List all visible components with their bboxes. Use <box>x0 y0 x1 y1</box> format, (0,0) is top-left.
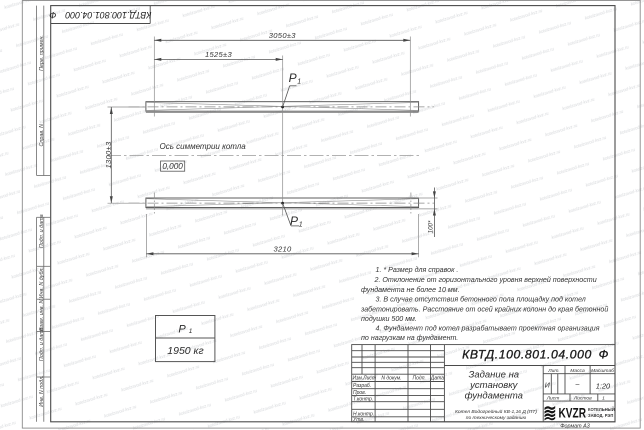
svg-text:ЗАВОД. РЭП: ЗАВОД. РЭП <box>588 413 613 418</box>
svg-text:Взам. инв. N: Взам. инв. N <box>39 299 45 331</box>
svg-text:Подп. и дата: Подп. и дата <box>39 327 45 361</box>
svg-text:Утв.: Утв. <box>353 417 364 423</box>
svg-text:N докум.: N докум. <box>381 376 401 382</box>
svg-text:1:20: 1:20 <box>596 382 611 391</box>
svg-text:по нагрузкам на фундамент.: по нагрузкам на фундамент. <box>361 334 458 342</box>
svg-text:Масса: Масса <box>570 368 585 374</box>
svg-text:1300±3: 1300±3 <box>104 141 113 169</box>
svg-text:2. Отклонение от горизонтально: 2. Отклонение от горизонтального уровня … <box>374 276 597 284</box>
svg-text:3. В случае отсутствия бетонно: 3. В случае отсутствия бетонного пола пл… <box>376 296 586 304</box>
svg-text:Справ. N: Справ. N <box>39 124 45 147</box>
svg-text:Т.контр.: Т.контр. <box>353 396 373 402</box>
svg-text:Инв. N подл.: Инв. N подл. <box>39 375 45 407</box>
svg-text:0,000: 0,000 <box>162 162 183 171</box>
svg-text:Листов: Листов <box>573 395 592 401</box>
svg-text:подушки 500 мм.: подушки 500 мм. <box>361 315 417 323</box>
svg-text:Инв. N дубл.: Инв. N дубл. <box>39 267 45 298</box>
svg-text:1: 1 <box>602 395 605 401</box>
svg-text:Дата: Дата <box>430 376 444 382</box>
svg-text:1: 1 <box>297 78 301 85</box>
svg-text:Ось симметрии котла: Ось симметрии котла <box>160 142 247 151</box>
svg-text:Изм.Лист: Изм.Лист <box>353 376 377 382</box>
svg-text:1950 кг: 1950 кг <box>167 345 203 357</box>
svg-text:Масштаб: Масштаб <box>591 368 614 374</box>
svg-text:3210: 3210 <box>273 245 292 254</box>
svg-text:Котел Водогрейный КВ-1,16 Д (П: Котел Водогрейный КВ-1,16 Д (ПТ) <box>455 408 537 415</box>
svg-text:КВТД.100.801.04.000 Ф: КВТД.100.801.04.000 Ф <box>462 347 609 361</box>
svg-text:по техническому заданию: по техническому заданию <box>466 415 527 421</box>
svg-text:4. Фундамент под котел разраба: 4. Фундамент под котел разрабатывает про… <box>376 324 600 332</box>
svg-text:Перв. примен.: Перв. примен. <box>39 35 45 71</box>
svg-text:Лист: Лист <box>546 395 560 401</box>
svg-text:KVZR: KVZR <box>559 405 587 421</box>
svg-text:1: 1 <box>189 328 193 335</box>
svg-text:фундамента не более 10 мм.: фундамента не более 10 мм. <box>361 286 460 294</box>
svg-text:Разраб.: Разраб. <box>353 383 371 389</box>
svg-text:Формат А3: Формат А3 <box>560 423 590 429</box>
svg-text:Пров.: Пров. <box>353 390 366 396</box>
svg-text:100*: 100* <box>428 220 435 233</box>
svg-text:Подп.: Подп. <box>413 376 426 382</box>
svg-text:1525±3: 1525±3 <box>205 50 233 59</box>
svg-text:Лит.: Лит. <box>547 368 559 374</box>
svg-text:1: 1 <box>299 222 303 229</box>
svg-text:–: – <box>575 381 580 388</box>
svg-text:Задание на: Задание на <box>468 369 519 380</box>
svg-text:1. * Размер для справок .: 1. * Размер для справок . <box>376 266 459 274</box>
svg-text:фундамента: фундамента <box>465 391 523 402</box>
svg-text:КВТД.100.801.04.000 Ф: КВТД.100.801.04.000 Ф <box>49 10 151 20</box>
svg-text:КОТЕЛЬНЫЙ: КОТЕЛЬНЫЙ <box>588 407 615 412</box>
svg-text:P: P <box>178 323 186 335</box>
svg-text:Подп. и дата: Подп. и дата <box>39 214 45 248</box>
svg-text:P: P <box>290 214 298 228</box>
svg-text:P: P <box>289 71 297 85</box>
svg-text:установку: установку <box>469 380 519 391</box>
svg-text:3050±3: 3050±3 <box>269 31 297 40</box>
svg-text:забетонировать. Расстояние от: забетонировать. Расстояние от осей крайн… <box>360 305 608 313</box>
